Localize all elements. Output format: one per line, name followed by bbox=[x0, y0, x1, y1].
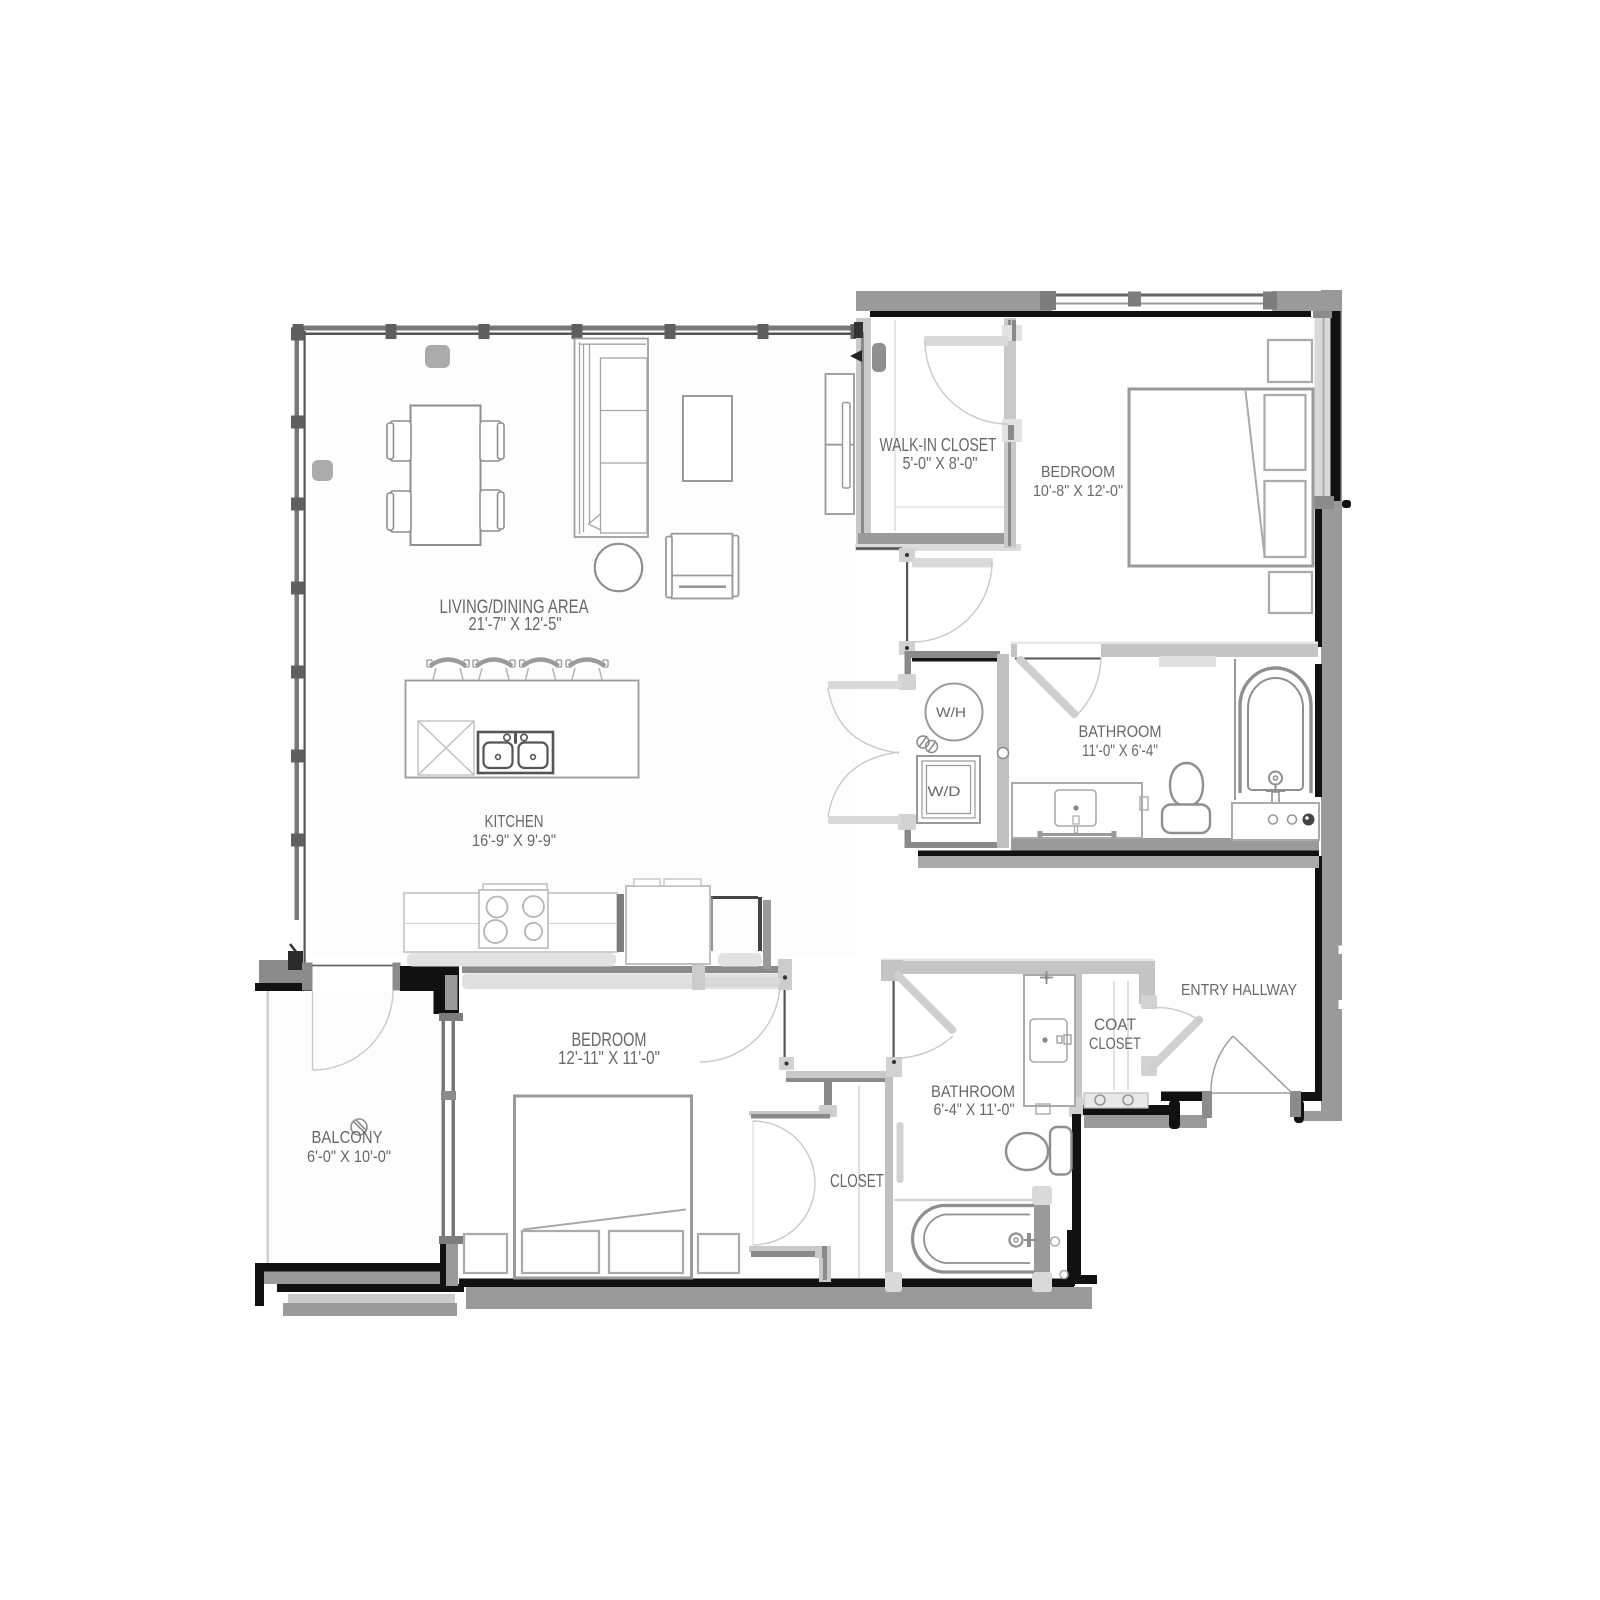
svg-text:16'-9" X 9'-9": 16'-9" X 9'-9" bbox=[472, 831, 556, 850]
svg-text:10'-8" X 12'-0": 10'-8" X 12'-0" bbox=[1033, 483, 1123, 500]
svg-text:6'-4" X 11'-0": 6'-4" X 11'-0" bbox=[934, 1101, 1015, 1119]
svg-text:BATHROOM: BATHROOM bbox=[1079, 722, 1162, 741]
svg-text:BEDROOM: BEDROOM bbox=[1041, 464, 1115, 481]
svg-text:ENTRY HALLWAY: ENTRY HALLWAY bbox=[1181, 982, 1297, 999]
svg-text:WALK-IN CLOSET: WALK-IN CLOSET bbox=[880, 434, 997, 455]
svg-text:6'-0" X 10'-0": 6'-0" X 10'-0" bbox=[307, 1147, 391, 1166]
svg-text:11'-0" X 6'-4": 11'-0" X 6'-4" bbox=[1082, 742, 1158, 760]
svg-text:KITCHEN: KITCHEN bbox=[485, 811, 544, 831]
svg-text:21'-7" X 12'-5": 21'-7" X 12'-5" bbox=[469, 614, 562, 634]
svg-text:5'-0" X 8'-0": 5'-0" X 8'-0" bbox=[903, 453, 978, 473]
svg-text:W/H: W/H bbox=[936, 704, 966, 720]
svg-text:W/D: W/D bbox=[928, 783, 961, 799]
svg-text:BATHROOM: BATHROOM bbox=[931, 1082, 1015, 1101]
svg-text:CLOSET: CLOSET bbox=[1089, 1034, 1141, 1053]
svg-text:COAT: COAT bbox=[1094, 1015, 1136, 1034]
svg-text:12'-11" X 11'-0": 12'-11" X 11'-0" bbox=[558, 1048, 660, 1068]
svg-text:BALCONY: BALCONY bbox=[312, 1127, 383, 1147]
svg-text:CLOSET: CLOSET bbox=[830, 1170, 884, 1191]
